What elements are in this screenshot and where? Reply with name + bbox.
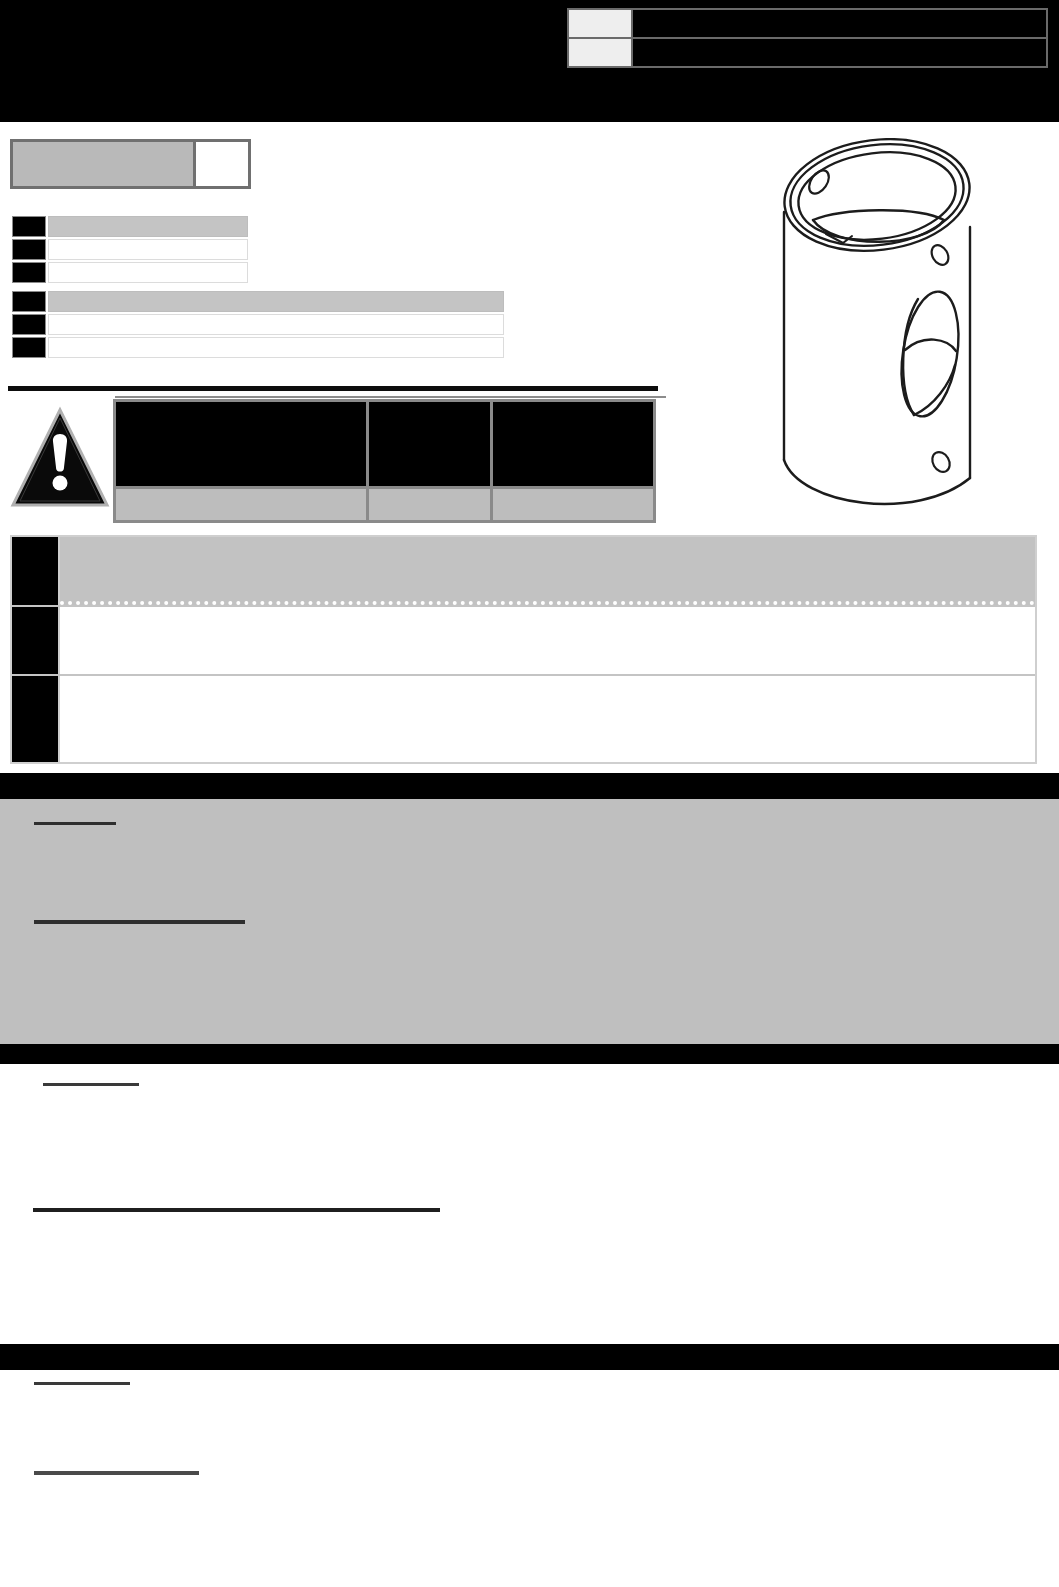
cylindrical-part-drawing xyxy=(742,138,982,523)
row-text-cell xyxy=(48,337,504,358)
section-divider-rule-thin xyxy=(115,396,666,398)
row-text-cell xyxy=(48,314,504,335)
step-number-cell xyxy=(12,676,60,762)
warning-col1-header xyxy=(116,402,366,486)
table-row xyxy=(12,337,504,358)
row-text-cell xyxy=(48,262,248,283)
table-row xyxy=(12,239,248,260)
row-number-cell xyxy=(12,291,46,312)
revision-box-value xyxy=(196,142,248,186)
parts-table-wide xyxy=(12,291,504,358)
step-number-cell xyxy=(12,607,60,674)
row-text-cell xyxy=(48,216,248,237)
step-text-cell xyxy=(60,537,1035,605)
warning-col2-header xyxy=(369,402,490,486)
row-text-cell xyxy=(48,291,504,312)
row-number-cell xyxy=(12,314,46,335)
table-row xyxy=(12,216,248,237)
warning-triangle-icon xyxy=(10,406,110,510)
info-row1-label xyxy=(569,10,631,37)
table-row xyxy=(12,537,1035,605)
blank-underlined-heading xyxy=(34,822,116,825)
header-banner xyxy=(0,0,1059,122)
step-text-cell xyxy=(60,676,1035,762)
step-number-cell xyxy=(12,537,60,605)
warning-col2-footer xyxy=(369,489,490,520)
row-text-cell xyxy=(48,239,248,260)
section-header-bar xyxy=(0,1044,1059,1064)
warning-col3-footer xyxy=(493,489,653,520)
table-row xyxy=(12,674,1035,762)
warning-table xyxy=(113,399,656,523)
steps-table xyxy=(10,535,1037,764)
blank-underlined-heading xyxy=(43,1083,139,1086)
blank-underlined-heading xyxy=(34,920,245,924)
info-row1-value xyxy=(633,10,1046,37)
warning-col3-header xyxy=(493,402,653,486)
info-row2-value xyxy=(633,39,1046,66)
header-info-table xyxy=(567,8,1048,68)
row-number-cell xyxy=(12,216,46,237)
row-number-cell xyxy=(12,262,46,283)
document-page xyxy=(0,0,1059,1587)
table-row xyxy=(12,291,504,312)
blank-underlined-heading xyxy=(33,1208,440,1212)
step-text-cell xyxy=(60,607,1035,674)
info-row2-label xyxy=(569,39,631,66)
section-header-bar xyxy=(0,773,1059,799)
table-row xyxy=(12,314,504,335)
section-divider-rule xyxy=(8,386,658,391)
section-header-bar xyxy=(0,1344,1059,1370)
blank-underlined-heading xyxy=(34,1471,199,1475)
parts-table-small xyxy=(12,216,248,283)
revision-box xyxy=(10,139,251,189)
warning-col1-footer xyxy=(116,489,366,520)
table-row xyxy=(12,605,1035,674)
row-number-cell xyxy=(12,239,46,260)
table-row xyxy=(12,262,248,283)
revision-box-label xyxy=(13,142,196,186)
row-number-cell xyxy=(12,337,46,358)
blank-underlined-heading xyxy=(34,1382,130,1385)
